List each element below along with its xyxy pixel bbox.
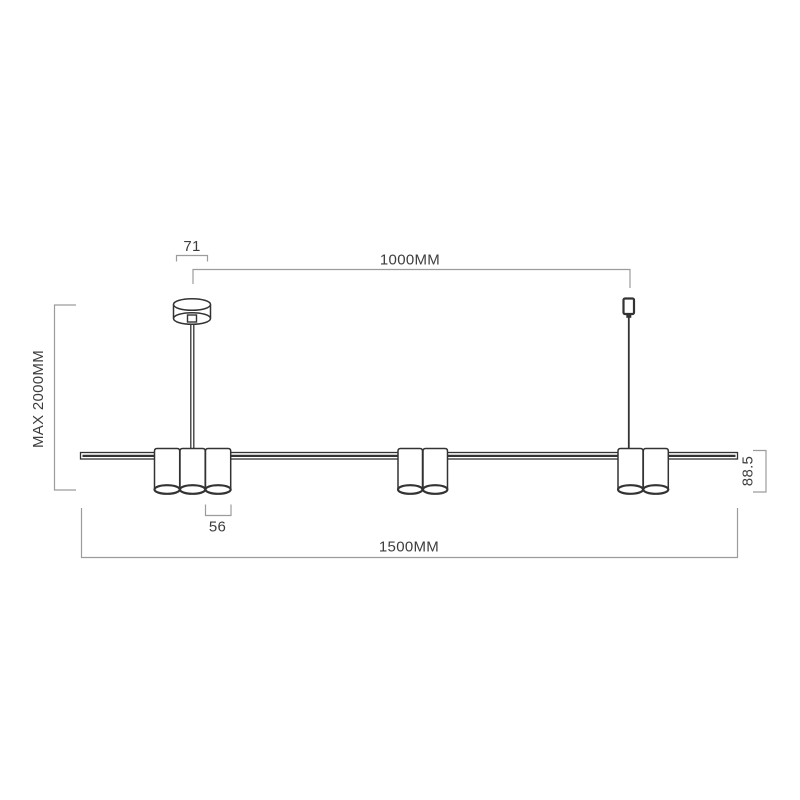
lamp-shade bbox=[423, 449, 448, 494]
shade-bottom-rim bbox=[155, 485, 180, 494]
shade-body bbox=[643, 449, 668, 490]
lamp-shade bbox=[206, 449, 231, 494]
dimension-labels: 71 1000MM MAX 2000MM 56 88.5 1500MM bbox=[30, 238, 757, 556]
shade-group-left bbox=[155, 449, 231, 494]
dim-shade-width-bracket bbox=[206, 505, 232, 516]
cable-grip-nub bbox=[626, 314, 631, 318]
lamp-shade bbox=[398, 449, 423, 494]
shade-bottom-rim bbox=[423, 485, 447, 494]
lamp-drawing bbox=[81, 299, 738, 494]
canopy-cable-grip bbox=[188, 315, 197, 322]
left-suspension-cable bbox=[191, 322, 194, 450]
label-max-drop: MAX 2000MM bbox=[30, 350, 47, 448]
shade-body bbox=[618, 449, 643, 490]
drawing-canvas: 71 1000MM MAX 2000MM 56 88.5 1500MM bbox=[0, 0, 800, 800]
lamp-shade bbox=[618, 449, 643, 494]
lamp-shade bbox=[643, 449, 668, 494]
shade-bottom-rim bbox=[206, 485, 231, 494]
dimension-lines bbox=[55, 256, 767, 558]
lamp-shade bbox=[180, 449, 205, 494]
label-total-length: 1500MM bbox=[379, 539, 439, 556]
label-fixture-height: 88.5 bbox=[740, 456, 757, 486]
shade-body bbox=[398, 449, 423, 490]
shade-bottom-rim bbox=[643, 485, 668, 494]
label-suspension-spacing: 1000MM bbox=[380, 252, 440, 269]
shade-bottom-rim bbox=[180, 485, 205, 494]
label-canopy-width: 71 bbox=[183, 238, 200, 255]
canopy-top-rim bbox=[174, 299, 211, 311]
cable-grip bbox=[624, 299, 635, 315]
dim-max-drop-line bbox=[55, 305, 77, 490]
label-shade-width: 56 bbox=[209, 519, 226, 536]
pendant-lamp-dimension-drawing: 71 1000MM MAX 2000MM 56 88.5 1500MM bbox=[0, 0, 800, 800]
shade-body bbox=[155, 449, 180, 490]
shade-body bbox=[423, 449, 448, 490]
right-suspension bbox=[624, 299, 635, 451]
shade-body bbox=[206, 449, 231, 490]
shade-bottom-rim bbox=[398, 485, 422, 494]
ceiling-canopy bbox=[174, 299, 211, 325]
shade-group-right bbox=[618, 449, 668, 494]
lamp-shade bbox=[155, 449, 180, 494]
shade-body bbox=[180, 449, 205, 490]
dim-canopy-width-bracket bbox=[177, 256, 208, 262]
dim-suspension-spacing-line bbox=[193, 270, 630, 289]
shade-group-middle bbox=[398, 449, 448, 494]
shade-bottom-rim bbox=[618, 485, 643, 494]
